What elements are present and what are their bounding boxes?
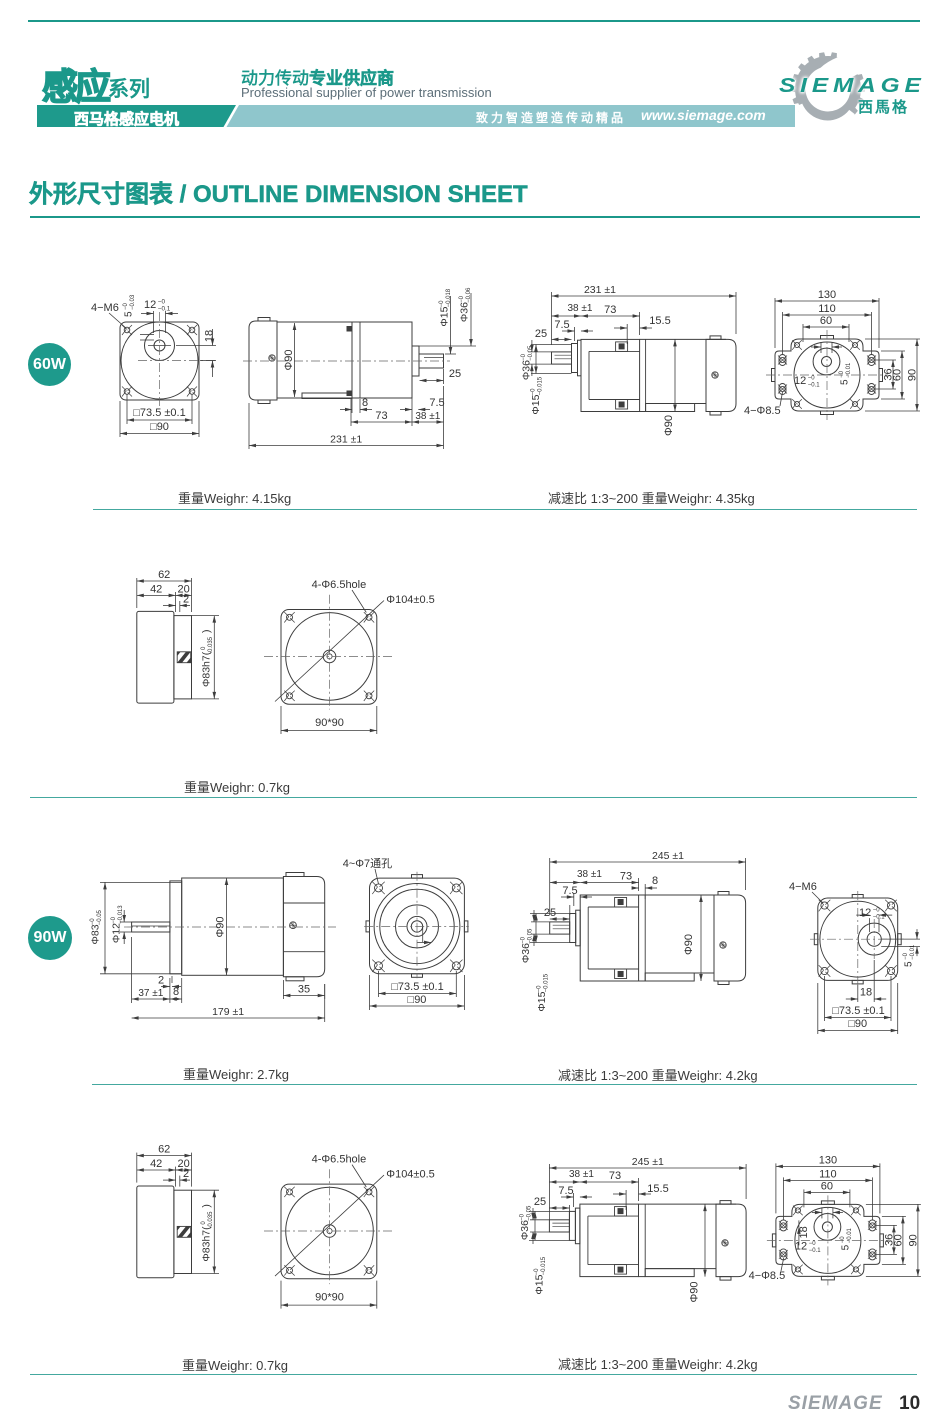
svg-text:−0.01: −0.01 (847, 1227, 853, 1243)
svg-text:−0.03: −0.03 (130, 294, 136, 310)
svg-text:−0.1: −0.1 (808, 383, 821, 389)
svg-text:−0: −0 (839, 370, 845, 378)
svg-text:Φ83: Φ83 (90, 924, 102, 944)
svg-text:−0: −0 (840, 1236, 846, 1244)
svg-text:−0.015: −0.015 (538, 376, 544, 395)
svg-text:35: 35 (298, 984, 310, 996)
svg-text:-0.035: -0.035 (208, 636, 214, 654)
svg-text:−0.1: −0.1 (809, 1248, 822, 1254)
svg-text:179 ±1: 179 ±1 (212, 1006, 244, 1018)
svg-text:38 ±1: 38 ±1 (415, 411, 440, 422)
svg-text:12: 12 (859, 907, 871, 919)
svg-text:2: 2 (183, 1168, 189, 1180)
svg-text:−0: −0 (809, 1241, 817, 1247)
svg-text:−0: −0 (534, 1268, 540, 1276)
svg-text:□73.5 ±0.1: □73.5 ±0.1 (832, 1005, 884, 1017)
svg-text:Φ36: Φ36 (519, 1220, 531, 1240)
svg-text:62: 62 (158, 1144, 170, 1156)
svg-text:−0.1: −0.1 (873, 915, 886, 921)
svg-text:−0: −0 (111, 916, 117, 924)
svg-text:−0: −0 (90, 918, 96, 926)
svg-text:−0.01: −0.01 (846, 362, 852, 378)
svg-text:Φ83h7(: Φ83h7( (201, 1226, 213, 1262)
svg-text:Φ12: Φ12 (111, 923, 123, 943)
svg-text:Φ104±0.5: Φ104±0.5 (386, 594, 434, 606)
svg-text:Φ90: Φ90 (283, 349, 295, 370)
svg-text:−0.05: −0.05 (97, 909, 103, 925)
svg-text:0: 0 (201, 646, 207, 650)
svg-text:−0: −0 (158, 299, 166, 306)
svg-text:2: 2 (158, 975, 164, 987)
svg-text:12: 12 (794, 375, 806, 387)
svg-text:Φ15: Φ15 (534, 1274, 546, 1294)
svg-text:18: 18 (860, 987, 872, 999)
svg-text:−0: −0 (521, 936, 527, 944)
svg-text:□73.5 ±0.1: □73.5 ±0.1 (133, 407, 185, 419)
svg-text:90: 90 (907, 369, 919, 381)
svg-text:−0.06: −0.06 (466, 287, 472, 303)
svg-text:2: 2 (183, 594, 189, 606)
svg-text:−0: −0 (439, 300, 445, 308)
svg-text:□73.5 ±0.1: □73.5 ±0.1 (391, 981, 443, 993)
svg-text:−0: −0 (808, 376, 816, 382)
svg-text:73: 73 (604, 304, 616, 316)
svg-text:73: 73 (609, 1170, 621, 1182)
svg-text:38 ±1: 38 ±1 (577, 869, 602, 880)
svg-text:90*90: 90*90 (315, 717, 344, 729)
svg-text:60: 60 (892, 369, 904, 381)
svg-text:4~Φ7通孔: 4~Φ7通孔 (343, 857, 392, 870)
svg-text:245 ±1: 245 ±1 (652, 850, 684, 862)
svg-text:Φ90: Φ90 (683, 934, 695, 955)
svg-text:□90: □90 (408, 994, 427, 1006)
svg-text:73: 73 (375, 410, 387, 422)
svg-text:Φ36: Φ36 (459, 302, 471, 322)
svg-text:231 ±1: 231 ±1 (584, 284, 616, 296)
svg-text:Φ83h7(: Φ83h7( (201, 651, 213, 687)
svg-text:18: 18 (204, 330, 216, 342)
svg-text:130: 130 (819, 1154, 837, 1166)
svg-text:5: 5 (840, 1244, 851, 1250)
svg-text:): ) (201, 1204, 213, 1208)
svg-text:8: 8 (173, 986, 179, 998)
svg-text:−0: −0 (459, 295, 465, 303)
svg-text:0: 0 (201, 1221, 207, 1225)
svg-text:73: 73 (620, 871, 632, 883)
svg-text:4−M6: 4−M6 (91, 302, 119, 314)
svg-text:37 ±1: 37 ±1 (138, 988, 163, 999)
svg-text:5: 5 (124, 311, 135, 317)
svg-text:8: 8 (362, 397, 368, 409)
svg-text:4−M6: 4−M6 (789, 881, 817, 893)
svg-text:15.5: 15.5 (649, 315, 670, 327)
svg-text:25: 25 (535, 328, 547, 340)
svg-text:25: 25 (534, 1196, 546, 1208)
svg-text:Φ15: Φ15 (439, 306, 451, 326)
svg-text:−0.015: −0.015 (544, 973, 550, 992)
svg-text:60: 60 (820, 315, 832, 327)
svg-text:−0.1: −0.1 (158, 306, 171, 313)
svg-text:−0: −0 (873, 908, 881, 914)
svg-text:130: 130 (818, 289, 836, 301)
svg-text:−0.015: −0.015 (541, 1256, 547, 1275)
svg-text:−0: −0 (521, 353, 527, 361)
svg-text:Φ90: Φ90 (663, 415, 675, 436)
svg-text:4−Φ8.5: 4−Φ8.5 (749, 1270, 786, 1282)
svg-text:−0: −0 (903, 952, 909, 960)
svg-text:90: 90 (907, 1234, 919, 1246)
svg-text:231 ±1: 231 ±1 (330, 434, 362, 446)
svg-text:−0.05: −0.05 (528, 928, 534, 944)
svg-text:−0: −0 (537, 985, 543, 993)
svg-text:−0: −0 (520, 1213, 526, 1221)
svg-text:Φ104±0.5: Φ104±0.5 (386, 1169, 434, 1181)
svg-text:8: 8 (652, 875, 658, 887)
svg-text:□90: □90 (848, 1018, 867, 1030)
svg-text:7.5: 7.5 (429, 397, 444, 409)
svg-text:-0.035: -0.035 (208, 1211, 214, 1229)
svg-text:62: 62 (158, 569, 170, 581)
svg-text:5: 5 (840, 379, 851, 385)
svg-text:42: 42 (150, 583, 162, 595)
svg-text:38 ±1: 38 ±1 (568, 303, 593, 314)
svg-text:7.5: 7.5 (562, 885, 577, 897)
svg-text:−0.018: −0.018 (446, 288, 452, 307)
svg-text:90*90: 90*90 (315, 1292, 344, 1304)
svg-text:Φ90: Φ90 (215, 916, 227, 937)
svg-text:25: 25 (544, 907, 556, 919)
svg-text:7.5: 7.5 (554, 319, 569, 331)
svg-text:−0: −0 (123, 302, 129, 310)
svg-text:4-Φ6.5hole: 4-Φ6.5hole (312, 1154, 367, 1166)
svg-text:110: 110 (819, 1168, 837, 1180)
svg-text:Φ15: Φ15 (530, 394, 542, 414)
svg-text:−0: −0 (531, 388, 537, 396)
svg-text:Φ15: Φ15 (536, 991, 548, 1011)
svg-text:38 ±1: 38 ±1 (569, 1169, 594, 1180)
svg-text:15.5: 15.5 (647, 1183, 668, 1195)
svg-text:12: 12 (795, 1240, 807, 1252)
svg-text:−0.01: −0.01 (910, 944, 916, 960)
svg-text:4-Φ6.5hole: 4-Φ6.5hole (312, 579, 367, 591)
svg-text:−0.013: −0.013 (118, 905, 124, 924)
svg-text:4−Φ8.5: 4−Φ8.5 (744, 405, 781, 417)
svg-text:□90: □90 (150, 421, 169, 433)
svg-text:12: 12 (144, 299, 156, 311)
svg-text:Φ90: Φ90 (689, 1281, 701, 1302)
svg-text:Φ36: Φ36 (520, 943, 532, 963)
svg-text:245 ±1: 245 ±1 (632, 1156, 664, 1168)
svg-text:110: 110 (818, 303, 836, 315)
svg-text:7.5: 7.5 (558, 1185, 573, 1197)
svg-text:5: 5 (904, 961, 915, 967)
svg-text:): ) (201, 630, 213, 634)
svg-text:60: 60 (821, 1180, 833, 1192)
svg-text:60: 60 (892, 1234, 904, 1246)
svg-text:42: 42 (150, 1158, 162, 1170)
svg-text:25: 25 (449, 368, 461, 380)
